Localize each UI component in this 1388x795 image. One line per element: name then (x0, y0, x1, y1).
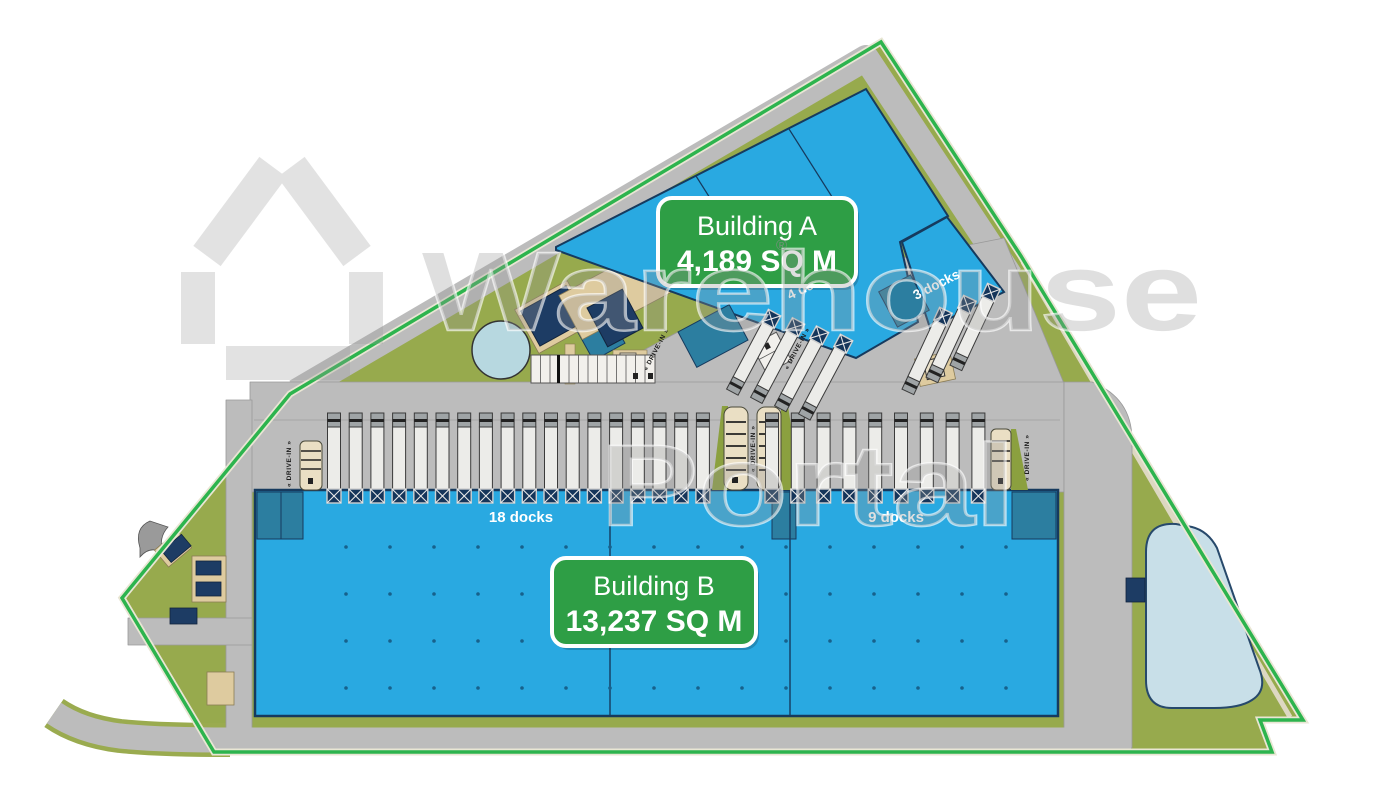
truck (414, 413, 427, 489)
dock-door (349, 489, 363, 503)
navy-unit (196, 561, 221, 575)
column-dot (476, 639, 480, 643)
column-dot (828, 639, 832, 643)
site-plan-canvas: « DRIVE-IN » « DRIVE-IN » « DRIVE-IN » «… (0, 0, 1388, 795)
column-dot (872, 592, 876, 596)
column-dot (388, 592, 392, 596)
truck (349, 413, 362, 489)
column-dot (344, 545, 348, 549)
truck (328, 413, 341, 489)
column-dot (916, 639, 920, 643)
building-b-label[interactable]: Building B 13,237 SQ M (552, 558, 759, 650)
stall-icon (648, 373, 653, 379)
navy-unit (196, 582, 221, 596)
drive-in-label: « DRIVE-IN » (286, 440, 293, 487)
column-dot (564, 545, 568, 549)
dock-door (414, 489, 428, 503)
column-dot (872, 686, 876, 690)
dock-door (479, 489, 493, 503)
building-b-title: Building B (593, 571, 715, 601)
navy-unit (1126, 578, 1145, 602)
column-dot (564, 686, 568, 690)
column-dot (520, 592, 524, 596)
truck (501, 413, 514, 489)
column-dot (784, 592, 788, 596)
column-dot (388, 639, 392, 643)
ramp (300, 441, 322, 490)
watermark-word-1: Warehouse (422, 229, 1202, 354)
truck (566, 413, 579, 489)
truck (479, 413, 492, 489)
column-dot (1004, 592, 1008, 596)
dock-door (566, 489, 580, 503)
warehouse-logo-icon (198, 167, 366, 363)
column-dot (344, 592, 348, 596)
truck (436, 413, 449, 489)
column-dot (960, 686, 964, 690)
column-dot (432, 686, 436, 690)
column-dot (916, 592, 920, 596)
stall-icon (633, 373, 638, 379)
dock-door (436, 489, 450, 503)
column-dot (520, 545, 524, 549)
dock-door (327, 489, 341, 503)
column-dot (608, 686, 612, 690)
truck (588, 413, 601, 489)
tan-pad (207, 672, 234, 705)
watermark-word-2: Portal (601, 422, 1016, 550)
truck (523, 413, 536, 489)
column-dot (828, 686, 832, 690)
column-dot (1004, 686, 1008, 690)
site-plan-svg: « DRIVE-IN » « DRIVE-IN » « DRIVE-IN » «… (0, 0, 1388, 795)
dock-door (522, 489, 536, 503)
column-dot (740, 686, 744, 690)
column-dot (476, 686, 480, 690)
column-dot (476, 545, 480, 549)
building-b-area: 13,237 SQ M (566, 605, 743, 638)
column-dot (960, 639, 964, 643)
column-dot (784, 686, 788, 690)
truck (458, 413, 471, 489)
truck (393, 413, 406, 489)
column-dot (476, 592, 480, 596)
navy-unit (170, 608, 197, 624)
column-dot (916, 686, 920, 690)
dock-door (587, 489, 601, 503)
column-dot (432, 545, 436, 549)
car-parking-row (531, 355, 655, 383)
column-dot (520, 686, 524, 690)
dock-door (501, 489, 515, 503)
truck (545, 413, 558, 489)
right-road (1064, 382, 1132, 748)
column-dot (784, 639, 788, 643)
drive-in-label: « DRIVE-IN » (1024, 434, 1031, 481)
watermark-registered: ® (776, 237, 787, 254)
column-dot (652, 686, 656, 690)
truck (371, 413, 384, 489)
building-b-teal-corner (257, 492, 303, 539)
column-dot (388, 686, 392, 690)
column-dot (344, 686, 348, 690)
dock-door (457, 489, 471, 503)
docks-count-label: 18 docks (489, 509, 553, 526)
column-dot (828, 592, 832, 596)
dock-door (544, 489, 558, 503)
column-dot (872, 639, 876, 643)
dock-door (392, 489, 406, 503)
column-dot (960, 592, 964, 596)
column-dot (388, 545, 392, 549)
building-b-teal-corner (1012, 492, 1056, 539)
column-dot (432, 639, 436, 643)
column-dot (1004, 639, 1008, 643)
column-dot (520, 639, 524, 643)
dock-door (370, 489, 384, 503)
column-dot (344, 639, 348, 643)
column-dot (432, 592, 436, 596)
column-dot (696, 686, 700, 690)
